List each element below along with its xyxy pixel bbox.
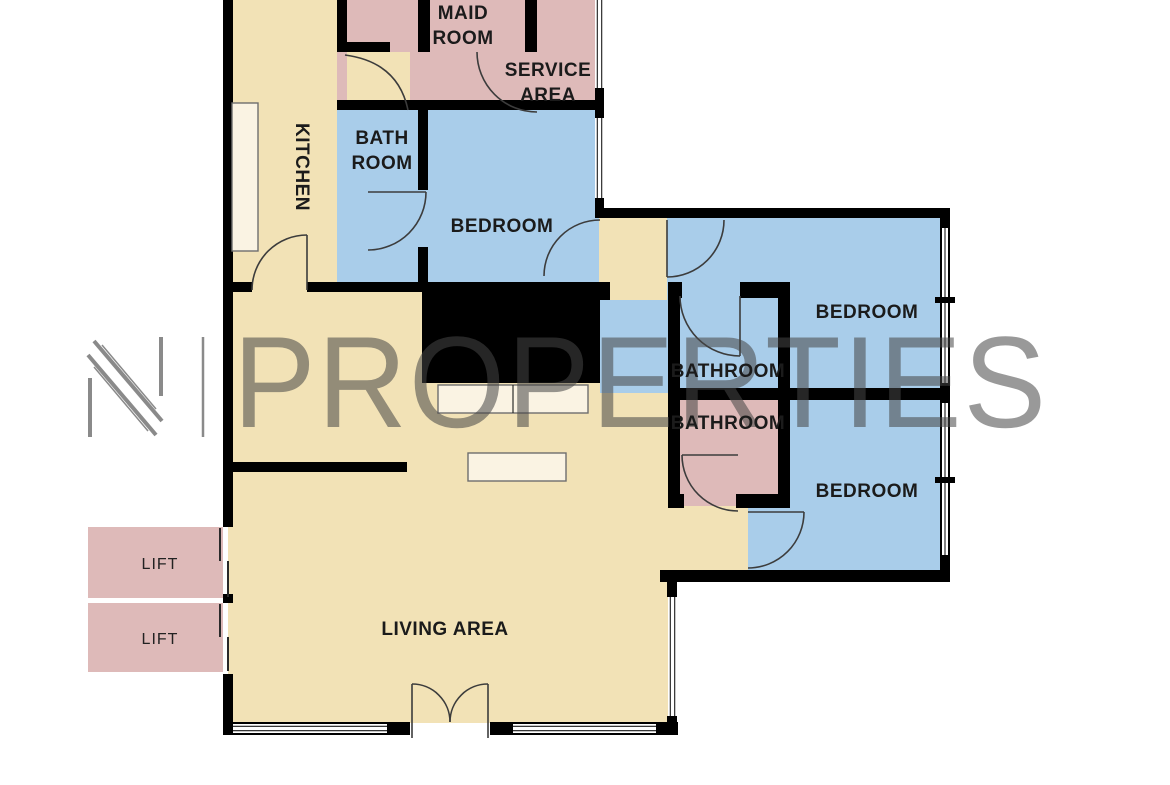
kitchen-counter [232, 103, 258, 251]
bathroom-pink-label: BATHROOM [671, 413, 785, 434]
wing-bottom-wall [660, 570, 950, 582]
interior-stub-wall [228, 462, 407, 472]
window-bottom-right [513, 724, 656, 733]
service-area-label-line2: AREA [520, 85, 576, 106]
bath-room-label-line2: ROOM [351, 153, 412, 174]
lift1-label: LIFT [142, 556, 179, 573]
window-bottom-left [233, 724, 387, 733]
wing-passage-floor [667, 506, 748, 572]
bedroom-tr-label: BEDROOM [816, 302, 919, 323]
floor-plan-page: PROPERTIES MAID ROOM SERVICE AREA KITCHE… [0, 0, 1170, 785]
maid-room-label-line2: ROOM [432, 28, 493, 49]
watermark-brand: PROPERTIES [233, 309, 1048, 455]
kitchen-label: KITCHEN [291, 123, 312, 211]
wing-top-wall [595, 208, 950, 218]
coffee-table [468, 453, 566, 481]
lift2-label: LIFT [142, 631, 179, 648]
service-area-label-line1: SERVICE [505, 60, 592, 81]
window-bedroom-tl [595, 118, 604, 198]
window-tick-2 [935, 477, 955, 483]
window-living-right [668, 597, 677, 716]
bedroom-tl-floor [418, 105, 604, 292]
window-tick-1 [935, 297, 955, 303]
bath-room-label-line1: BATH [355, 128, 408, 149]
floor-plan-svg: PROPERTIES MAID ROOM SERVICE AREA KITCHE… [0, 0, 1170, 785]
bedroom-tl-label: BEDROOM [451, 216, 554, 237]
living-area-label: LIVING AREA [381, 619, 508, 640]
bedroom-br-label: BEDROOM [816, 481, 919, 502]
maid-room-label-line1: MAID [438, 3, 489, 24]
bathroom-blue-label: BATHROOM [671, 361, 785, 382]
window-service [595, 0, 604, 88]
